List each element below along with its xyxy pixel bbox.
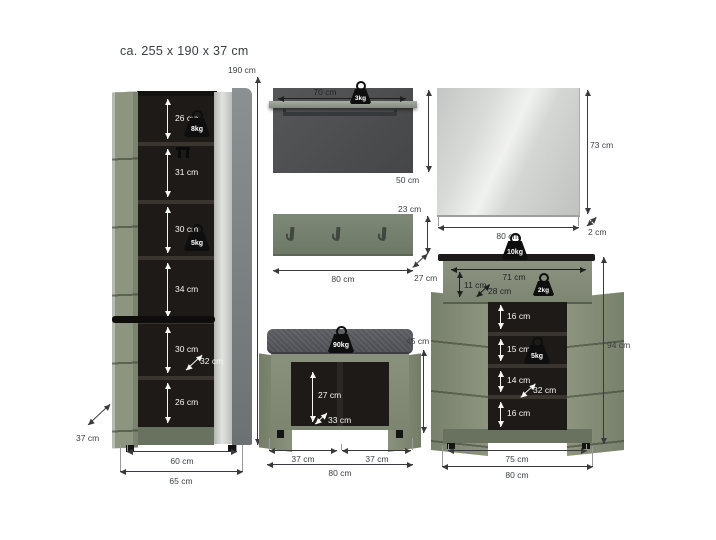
dim-line-16cm-2 xyxy=(500,402,501,427)
cabinet-hook-prong xyxy=(186,149,189,158)
dim-line-80cm xyxy=(438,227,579,228)
tall-cabinet-base xyxy=(138,427,214,445)
dim-line-31cm xyxy=(167,149,168,197)
dim-line-50cm xyxy=(428,90,429,172)
dim-line-73cm xyxy=(587,90,588,214)
dim-line-80cm xyxy=(442,466,593,467)
wardrobe-rail xyxy=(283,112,397,116)
extension-line xyxy=(120,445,121,471)
bench-leg xyxy=(277,430,284,438)
dim-line-11cm xyxy=(459,272,460,297)
weight-body: 2kg xyxy=(533,281,554,296)
weight-body: 5kg xyxy=(184,232,210,251)
weight-icon-10kg: 10kg xyxy=(502,233,528,260)
coat-rack-panel xyxy=(273,214,413,256)
dim-label-inner-width: 60 cm xyxy=(170,456,193,466)
furniture-dimensions-diagram: ca. 255 x 190 x 37 cm 26 cm 31 cm 30 cm … xyxy=(0,0,716,540)
dim-label-depth: 2 cm xyxy=(588,227,606,237)
weight-body: 8kg xyxy=(184,118,210,137)
dim-label: 33 cm xyxy=(328,415,351,425)
dim-label-height: 23 cm xyxy=(398,204,421,214)
dim-label-right-width: 37 cm xyxy=(365,454,388,464)
weight-icon-3kg: 3kg xyxy=(350,81,371,104)
dim-label: 16 cm xyxy=(507,311,530,321)
weight-icon-2kg: 2kg xyxy=(533,273,554,296)
dim-label-width: 80 cm xyxy=(328,468,351,478)
dim-line-37cm-left xyxy=(269,450,337,451)
dim-line-16cm-1 xyxy=(500,305,501,329)
dim-label-drawer-depth: 28 cm xyxy=(488,286,511,296)
dim-line-23cm xyxy=(427,216,428,254)
dim-label: 14 cm xyxy=(507,375,530,385)
dim-label-inner-width: 75 cm xyxy=(505,454,528,464)
tall-cabinet-shelf xyxy=(138,142,214,146)
tall-cabinet-left-door xyxy=(112,92,138,449)
extension-line xyxy=(242,445,243,471)
dim-label-depth: 37 cm xyxy=(76,433,99,443)
weight-icon-8kg: 8kg xyxy=(184,110,210,137)
bench-leg xyxy=(396,430,403,438)
wall-panel-shelf xyxy=(269,101,417,108)
dim-label-height: 73 cm xyxy=(590,140,613,150)
weight-body: 5kg xyxy=(524,345,550,364)
dim-line-26cm-bottom xyxy=(167,383,168,423)
weight-icon-5kg: 5kg xyxy=(184,224,210,251)
dim-label-depth: 27 cm xyxy=(414,273,437,283)
dim-label: 34 cm xyxy=(175,284,198,294)
dim-label-left-width: 37 cm xyxy=(291,454,314,464)
weight-icon-90kg: 90kg xyxy=(328,326,354,353)
dim-line-75cm xyxy=(448,450,587,451)
dim-line-26cm-top xyxy=(167,99,168,139)
weight-body: 3kg xyxy=(350,89,371,104)
dim-line-27cm-inner xyxy=(312,372,313,422)
mirror-glass xyxy=(437,88,580,217)
shoe-cabinet-shelf xyxy=(488,332,567,336)
dim-label-outer-width: 80 cm xyxy=(505,470,528,480)
dim-label-height: 45 cm xyxy=(406,336,429,346)
tall-cabinet-right-door xyxy=(232,88,252,445)
dim-line-37cm-right xyxy=(342,450,411,451)
shoe-cabinet-base xyxy=(443,429,592,443)
dim-label-drawer-width: 71 cm xyxy=(502,272,525,282)
dim-label-outer-width: 65 cm xyxy=(169,476,192,486)
dim-line-15cm xyxy=(500,339,501,361)
tall-cabinet-mirror-door xyxy=(214,92,232,444)
dim-label: 32 cm xyxy=(533,385,556,395)
dim-line-30cm xyxy=(167,207,168,253)
weight-body: 10kg xyxy=(502,241,528,260)
dim-line-27cm-depth xyxy=(412,253,427,267)
dim-line-94cm xyxy=(603,257,604,444)
dim-line-37cm-depth xyxy=(88,404,111,425)
dim-line-2cm-depth xyxy=(586,217,596,227)
dim-label-height: 94 cm xyxy=(607,340,630,350)
tall-cabinet-shelf xyxy=(138,256,214,260)
dim-line-190cm xyxy=(257,77,258,445)
extension-line xyxy=(412,438,413,450)
dim-label: 27 cm xyxy=(318,390,341,400)
dim-line-70cm xyxy=(278,98,406,99)
shoe-cabinet-shelf xyxy=(488,364,567,368)
dim-label-width: 80 cm xyxy=(331,274,354,284)
dim-label: 16 cm xyxy=(507,408,530,418)
weight-icon-5kg-shoe: 5kg xyxy=(524,337,550,364)
cabinet-hook-prong xyxy=(178,149,181,158)
dim-label-height: 50 cm xyxy=(396,175,419,185)
weight-body: 90kg xyxy=(328,334,354,353)
shoe-cabinet-shelf xyxy=(488,395,567,399)
dim-line-14cm xyxy=(500,371,501,392)
dim-line-65cm xyxy=(120,471,243,472)
dim-line-45cm xyxy=(423,350,424,433)
pullout-rail xyxy=(112,316,215,323)
dim-label: 32 cm xyxy=(200,356,223,366)
dim-line-34cm xyxy=(167,263,168,317)
dim-line-80cm xyxy=(273,270,413,271)
tall-cabinet-shelf xyxy=(138,376,214,380)
tall-cabinet-shelf xyxy=(138,200,214,204)
dim-line-60cm xyxy=(127,451,237,452)
dim-label: 31 cm xyxy=(175,167,198,177)
overall-dimensions-title: ca. 255 x 190 x 37 cm xyxy=(120,44,249,58)
dim-label: 30 cm xyxy=(175,344,198,354)
dim-line-30cm-2 xyxy=(167,327,168,373)
dim-line-71cm xyxy=(451,269,586,270)
dim-label-width: 70 cm xyxy=(313,87,336,97)
dim-label-height: 190 cm xyxy=(228,65,256,75)
dim-label: 26 cm xyxy=(175,397,198,407)
dim-line-80cm xyxy=(267,464,413,465)
